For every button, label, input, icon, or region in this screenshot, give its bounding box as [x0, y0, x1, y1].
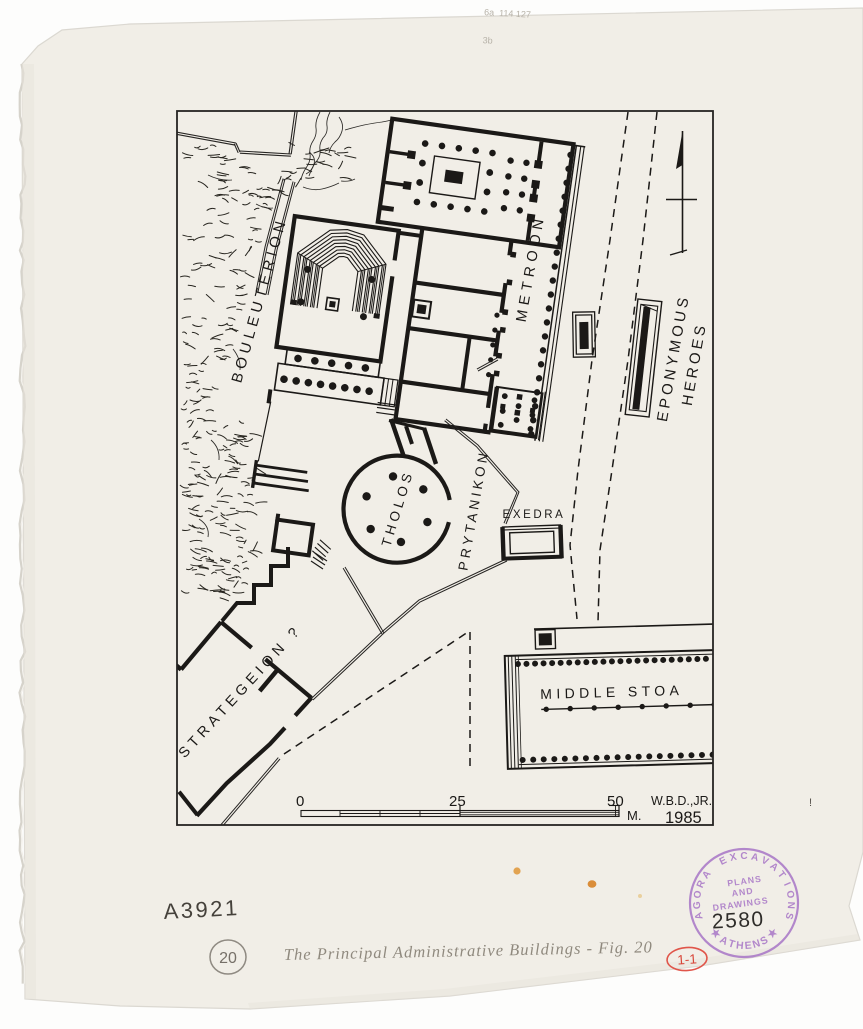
svg-text:M.: M. — [627, 808, 641, 823]
svg-text:H: H — [735, 939, 744, 952]
svg-text:0: 0 — [296, 793, 304, 810]
svg-text:25: 25 — [449, 793, 466, 810]
svg-text:A3921: A3921 — [163, 895, 240, 924]
svg-text:G: G — [692, 901, 703, 910]
svg-text:20: 20 — [219, 950, 237, 967]
svg-text:50: 50 — [607, 793, 624, 810]
svg-text:EXEDRA: EXEDRA — [503, 509, 566, 521]
svg-text:1-1: 1-1 — [677, 951, 698, 967]
svg-text:N: N — [785, 901, 796, 909]
svg-text:3b: 3b — [482, 35, 493, 46]
svg-text:C: C — [740, 851, 747, 862]
svg-text:W.B.D.,JR.: W.B.D.,JR. — [651, 794, 712, 808]
svg-text:2580: 2580 — [711, 908, 765, 934]
svg-text:!: ! — [809, 797, 812, 809]
